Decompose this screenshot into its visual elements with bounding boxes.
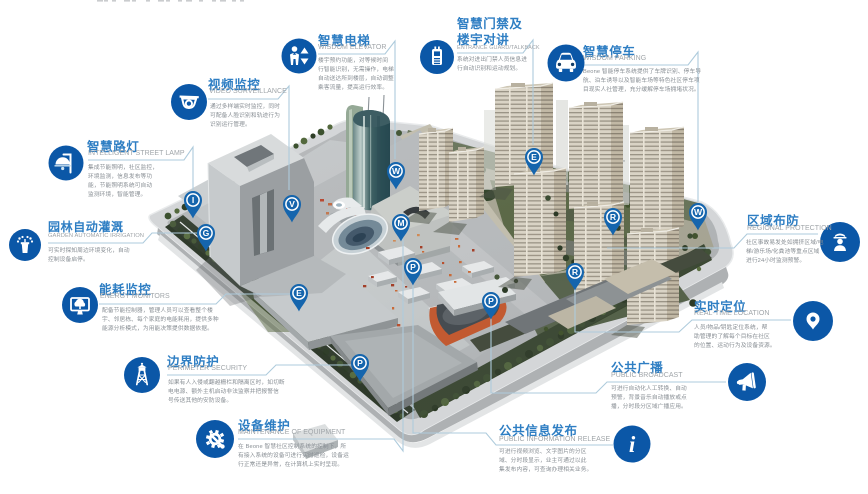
svg-text:W: W — [392, 166, 401, 176]
svg-text:E: E — [531, 152, 537, 162]
svg-text:I: I — [192, 195, 194, 205]
svg-text:V: V — [289, 199, 295, 209]
svg-text:G: G — [203, 228, 210, 238]
svg-text:R: R — [610, 212, 617, 222]
svg-text:i: i — [629, 432, 636, 457]
svg-text:W: W — [694, 207, 703, 217]
svg-text:P: P — [488, 296, 494, 306]
svg-text:M: M — [397, 218, 404, 228]
svg-text:P: P — [357, 358, 363, 368]
svg-text:E: E — [296, 288, 302, 298]
svg-text:P: P — [410, 262, 416, 272]
svg-text:R: R — [572, 267, 579, 277]
